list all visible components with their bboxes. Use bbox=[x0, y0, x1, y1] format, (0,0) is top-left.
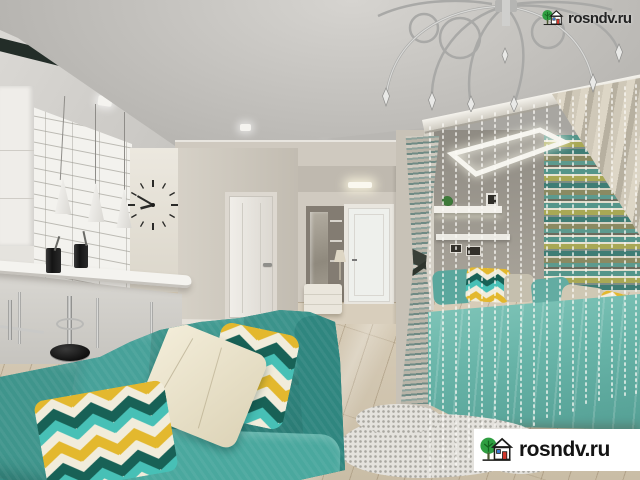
ottoman-seam bbox=[304, 294, 342, 295]
pillow-fold-line bbox=[198, 347, 222, 428]
door-panel-line bbox=[354, 214, 384, 296]
chandelier-crystal-drops bbox=[383, 44, 623, 112]
drink-glass bbox=[74, 244, 88, 268]
counter-leg bbox=[18, 292, 21, 344]
hallway-ceiling-light bbox=[348, 182, 372, 188]
watermark-top-text: rosndv.ru bbox=[568, 10, 632, 27]
door-panel-line bbox=[242, 203, 243, 313]
bar-stool-footring bbox=[56, 318, 84, 330]
pendant-wire bbox=[95, 104, 96, 184]
hallway bbox=[296, 166, 400, 324]
door bbox=[348, 208, 390, 302]
ottoman-seam bbox=[304, 304, 342, 305]
watermark-bottom: rosndv.ru bbox=[474, 429, 640, 471]
bar-stool-seat bbox=[50, 344, 90, 361]
wall-clock bbox=[126, 178, 180, 232]
door-panel-line bbox=[260, 203, 261, 313]
drink-glass bbox=[46, 248, 61, 273]
clock-minute-hand bbox=[137, 196, 153, 205]
rosndv-logo-icon bbox=[480, 434, 514, 466]
watermark-top: rosndv.ru bbox=[542, 8, 632, 28]
unit-shelf bbox=[330, 240, 342, 242]
door-handle bbox=[352, 259, 357, 261]
cabinet-seam bbox=[0, 150, 34, 151]
apartment-interior-photo: rosndv.ru rosndv.ru bbox=[0, 0, 640, 480]
counter-leg bbox=[96, 298, 99, 348]
watermark-bottom-text: rosndv.ru bbox=[519, 438, 610, 462]
ottoman bbox=[304, 284, 342, 314]
door-handle bbox=[263, 263, 272, 266]
unit-shelf bbox=[330, 220, 342, 222]
table-lamp-stem bbox=[339, 262, 341, 280]
bead-curtain bbox=[420, 78, 640, 480]
recessed-spotlight bbox=[240, 124, 251, 131]
hallway-ceiling bbox=[296, 166, 400, 192]
kitchen-upper-cabinets bbox=[0, 86, 34, 246]
cabinet-seam bbox=[0, 198, 34, 199]
pendant-wire bbox=[124, 112, 125, 190]
bar-stool-pole bbox=[8, 300, 12, 340]
door bbox=[229, 196, 273, 318]
rosndv-logo-icon bbox=[542, 8, 564, 28]
